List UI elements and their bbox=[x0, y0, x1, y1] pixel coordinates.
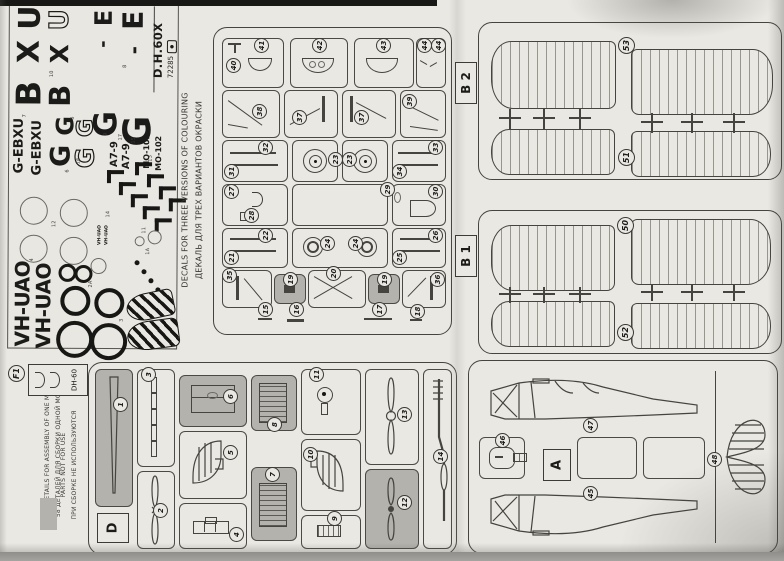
part-drawing bbox=[236, 276, 239, 300]
sprue-rail bbox=[499, 117, 521, 119]
part-number-41: 41 bbox=[254, 38, 269, 53]
sprue-rail bbox=[651, 113, 653, 133]
part-number-37: 37 bbox=[354, 110, 369, 125]
note-not-for-use: PARTS NOT FOR USE ПРИ СБОРКЕ НЕ ИСПОЛЬЗУ… bbox=[59, 410, 81, 519]
sprue-rail bbox=[509, 287, 511, 303]
decal-ring bbox=[60, 286, 90, 316]
rudder-stripe-decal bbox=[125, 317, 180, 353]
part-number-39: 39 bbox=[402, 94, 417, 109]
decal-index: 3 bbox=[120, 318, 125, 321]
sprue-compartment bbox=[222, 90, 280, 138]
decal-circle bbox=[148, 230, 162, 244]
decal-ring bbox=[90, 323, 127, 360]
part-number-25: 25 bbox=[392, 250, 407, 265]
decal-registration: G-EBXU bbox=[31, 120, 44, 176]
scanned-instruction-page: D.H.60X 72285 U U X X B B E - G E - G G-… bbox=[0, 0, 784, 561]
part-drawing bbox=[309, 61, 316, 68]
decal-letter: - bbox=[124, 46, 144, 54]
decal-sheet: D.H.60X 72285 U U X X B B E - G E - G G-… bbox=[7, 3, 179, 350]
part-drawing bbox=[350, 96, 353, 122]
decal-index: 14 bbox=[106, 211, 111, 218]
part-number-19: 19 bbox=[377, 272, 392, 287]
part-drawing bbox=[364, 318, 392, 320]
part-number-5: 5 bbox=[223, 445, 238, 460]
part-number-45: 45 bbox=[583, 486, 598, 501]
decal-index: 16 bbox=[77, 158, 82, 165]
decal-circle bbox=[135, 236, 145, 246]
sprue-rail bbox=[569, 293, 591, 295]
sprue-f-badge: F1 bbox=[8, 365, 25, 382]
sprue-b2: 53 51 bbox=[478, 22, 782, 180]
part-number-11: 11 bbox=[309, 367, 324, 382]
wing-panel bbox=[491, 301, 615, 347]
decal-index: 6 bbox=[66, 169, 71, 172]
part-number-35: 35 bbox=[222, 268, 237, 283]
part-number-16: 16 bbox=[289, 302, 304, 317]
decal-index: 13 bbox=[149, 155, 154, 162]
part-number-22: 22 bbox=[258, 228, 273, 243]
sprue-rail bbox=[509, 109, 511, 129]
part-number-31: 31 bbox=[224, 164, 239, 179]
part-drawing bbox=[317, 525, 341, 537]
sprue-rail bbox=[651, 285, 653, 301]
sprue-rail bbox=[499, 293, 521, 295]
part-drawing bbox=[228, 43, 241, 45]
part-drawing bbox=[287, 319, 304, 322]
part-number-13: 13 bbox=[397, 407, 412, 422]
part-number-53: 53 bbox=[618, 37, 635, 54]
sprue-a-label: A bbox=[551, 460, 564, 470]
sprue-compartment bbox=[643, 437, 705, 479]
part-number-44: 44 bbox=[417, 38, 432, 53]
part-number-26: 26 bbox=[428, 228, 443, 243]
part-number-24: 24 bbox=[348, 236, 363, 251]
sprue-compartment bbox=[577, 437, 637, 479]
decal-registration-small: VH-UAO bbox=[98, 225, 103, 245]
part-number-30: 30 bbox=[428, 184, 443, 199]
decal-code: MO-102 bbox=[155, 136, 163, 171]
note-decals: DECALS FOR THREE VERSIONS OF COLOURING Д… bbox=[179, 92, 208, 287]
sprue-a-label-box: A bbox=[543, 449, 571, 481]
decal-letter: X bbox=[47, 44, 72, 63]
decal-index: 7 bbox=[23, 114, 28, 117]
wing-panel bbox=[631, 219, 771, 285]
sprue-rail bbox=[543, 109, 545, 129]
sprue-rail bbox=[641, 121, 663, 123]
decal-code: A7-9 bbox=[110, 141, 120, 167]
part-number-29: 29 bbox=[380, 182, 395, 197]
decal-registration: VH-UAO bbox=[33, 263, 53, 349]
not-for-use-swatch bbox=[40, 498, 57, 530]
decal-index: 8 bbox=[123, 64, 128, 67]
sprue-b2-label-box: B 2 bbox=[455, 62, 477, 104]
windscreen-part bbox=[50, 372, 60, 388]
part-number-48: 48 bbox=[707, 452, 722, 467]
part-number-51: 51 bbox=[618, 149, 635, 166]
part-drawing bbox=[205, 517, 217, 524]
decal-dot bbox=[148, 278, 153, 283]
decal-registration: G-EBXU bbox=[13, 118, 26, 174]
part-drawing bbox=[321, 403, 328, 415]
decal-letter: U bbox=[16, 5, 46, 30]
part-drawing bbox=[322, 96, 325, 122]
decal-code: A7-9 bbox=[122, 143, 132, 169]
sprue-b1: 50 52 bbox=[478, 210, 782, 354]
part-number-44: 44 bbox=[431, 38, 446, 53]
part-number-9: 9 bbox=[327, 511, 342, 526]
sprue-d-label: D bbox=[107, 523, 120, 534]
decal-ring bbox=[56, 321, 93, 358]
sprue-rail bbox=[533, 293, 555, 295]
part-number-38: 38 bbox=[252, 104, 267, 119]
part-number-27: 27 bbox=[224, 184, 239, 199]
part-number-2: 2 bbox=[153, 503, 168, 518]
part-number-17: 17 bbox=[372, 302, 387, 317]
part-number-7: 7 bbox=[265, 467, 280, 482]
sprue-f-box: DH-60 bbox=[28, 364, 88, 396]
decal-circle bbox=[60, 199, 88, 227]
wing-panel bbox=[631, 303, 771, 349]
sprue-c: 41 40 42 43 44 44 38 37 37 39 32 31 bbox=[213, 27, 452, 335]
part-drawing bbox=[489, 447, 515, 469]
decal-registration: VH-UAO bbox=[12, 261, 32, 347]
part-number-6: 6 bbox=[223, 389, 238, 404]
sprue-rail bbox=[579, 109, 581, 129]
kit-number: 72285 bbox=[168, 56, 175, 78]
sprue-rail bbox=[723, 291, 745, 293]
decal-index: 9 bbox=[104, 132, 109, 135]
decal-dot bbox=[141, 269, 146, 274]
sprue-rail bbox=[691, 285, 693, 301]
wing-panel bbox=[491, 225, 615, 291]
decal-letter: B bbox=[46, 85, 75, 107]
sprue-d-label-box: D bbox=[97, 513, 129, 543]
part-drawing bbox=[410, 319, 422, 321]
part-drawing bbox=[400, 250, 440, 252]
decal-letter: U bbox=[47, 9, 73, 30]
decal-letter: E bbox=[120, 11, 148, 30]
part-number-42: 42 bbox=[312, 38, 327, 53]
sprue-f-label: DH-60 bbox=[72, 369, 79, 391]
wing-panel bbox=[631, 131, 771, 177]
part-drawing bbox=[258, 318, 272, 320]
decal-letter: X bbox=[15, 40, 45, 63]
decal-circle bbox=[90, 258, 106, 274]
decal-index: 17 bbox=[119, 134, 124, 141]
part-number-46: 46 bbox=[495, 433, 510, 448]
part-number-32: 32 bbox=[258, 140, 273, 155]
kit-corner-block: D.H.60X 72285 bbox=[153, 23, 177, 79]
sprue-rail bbox=[543, 287, 545, 303]
sprue-rail bbox=[691, 113, 693, 133]
decal-index: 15 bbox=[132, 137, 137, 144]
sprue-rail bbox=[569, 117, 591, 119]
part-drawing-engine bbox=[259, 483, 287, 527]
windscreen-part bbox=[35, 372, 45, 388]
sprue-rail bbox=[733, 285, 735, 301]
sprue-rail bbox=[681, 121, 703, 123]
part-number-8: 8 bbox=[267, 417, 282, 432]
part-drawing bbox=[318, 61, 325, 68]
part-number-36: 36 bbox=[430, 272, 445, 287]
decal-registration-small: VH-UAO bbox=[105, 225, 110, 245]
part-drawing bbox=[410, 200, 436, 217]
part-number-12: 12 bbox=[397, 495, 412, 510]
part-number-50: 50 bbox=[617, 217, 634, 234]
paper-bottom-edge bbox=[0, 552, 784, 561]
part-number-33: 33 bbox=[428, 140, 443, 155]
sprue-rail bbox=[641, 291, 663, 293]
decal-index: 11 bbox=[142, 227, 147, 234]
sprue-rail bbox=[723, 121, 745, 123]
sprue-rail bbox=[579, 287, 581, 303]
part-number-28: 28 bbox=[244, 208, 259, 223]
decal-circle bbox=[20, 197, 48, 225]
part-number-52: 52 bbox=[617, 324, 634, 341]
part-drawing-wheel bbox=[303, 149, 327, 173]
part-drawing bbox=[207, 392, 218, 399]
decal-index: 1A bbox=[146, 248, 151, 255]
part-number-1: 1 bbox=[113, 397, 128, 412]
wing-panel bbox=[631, 49, 773, 115]
part-drawing bbox=[322, 392, 326, 396]
sprue-compartment bbox=[292, 184, 388, 226]
part-drawing bbox=[151, 377, 157, 457]
decal-letter: - bbox=[95, 40, 113, 48]
part-number-14: 14 bbox=[433, 449, 448, 464]
part-number-3: 3 bbox=[141, 367, 156, 382]
decal-index: 2A bbox=[89, 280, 94, 287]
part-number-37: 37 bbox=[292, 110, 307, 125]
part-number-23: 23 bbox=[342, 152, 357, 167]
sprue-b2-label: B 2 bbox=[460, 72, 472, 94]
part-drawing bbox=[234, 44, 236, 53]
decal-circle bbox=[20, 235, 48, 263]
part-number-21: 21 bbox=[224, 250, 239, 265]
part-number-10: 10 bbox=[303, 447, 318, 462]
part-number-40: 40 bbox=[226, 58, 241, 73]
brand-logo-icon bbox=[166, 40, 176, 53]
sprue-rail bbox=[533, 117, 555, 119]
decal-letter: B bbox=[12, 81, 46, 107]
decal-dot bbox=[135, 260, 140, 265]
decal-ring bbox=[94, 288, 124, 318]
decal-letter: G bbox=[75, 119, 97, 137]
part-number-15: 15 bbox=[258, 302, 273, 317]
decal-index: 12 bbox=[52, 220, 57, 227]
wing-panel bbox=[491, 129, 615, 175]
part-number-20: 20 bbox=[326, 266, 341, 281]
sprue-rail bbox=[681, 291, 703, 293]
part-number-23: 23 bbox=[328, 152, 343, 167]
sprue-rail bbox=[733, 113, 735, 133]
sprue-a: 47 46 A 45 48 bbox=[468, 360, 778, 554]
part-number-34: 34 bbox=[392, 164, 407, 179]
walkway-decal bbox=[155, 218, 172, 231]
sprue-b1-label-box: B 1 bbox=[455, 235, 477, 277]
part-number-4: 4 bbox=[229, 527, 244, 542]
sprue-d: 1 D 3 2 6 5 4 8 7 bbox=[88, 362, 457, 555]
decal-index: 5 bbox=[71, 116, 76, 119]
part-drawing bbox=[513, 453, 527, 462]
kit-model: D.H.60X bbox=[153, 23, 165, 79]
part-drawing bbox=[495, 456, 503, 458]
part-number-19: 19 bbox=[283, 272, 298, 287]
decal-index: 10 bbox=[50, 70, 55, 77]
decal-circle bbox=[60, 237, 88, 265]
scan-edge-strip bbox=[0, 0, 437, 6]
wing-panel bbox=[491, 41, 616, 109]
part-number-47: 47 bbox=[583, 418, 598, 433]
decal-letter: E bbox=[92, 10, 116, 27]
part-number-24: 24 bbox=[320, 236, 335, 251]
part-number-18: 18 bbox=[410, 304, 425, 319]
part-drawing bbox=[394, 192, 401, 203]
sprue-b1-label: B 1 bbox=[460, 245, 472, 267]
part-number-43: 43 bbox=[376, 38, 391, 53]
